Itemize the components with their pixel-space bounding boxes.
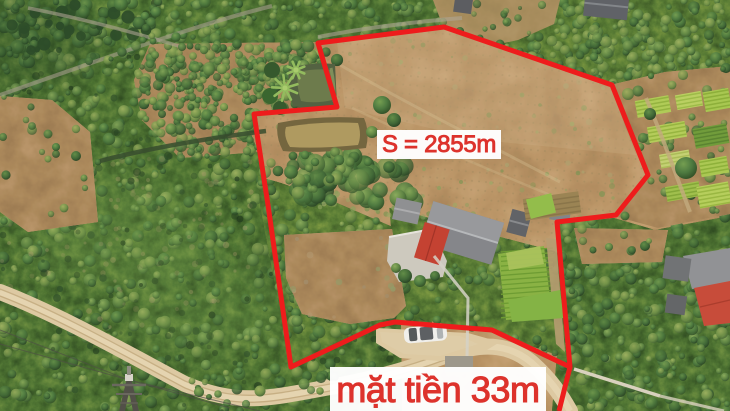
svg-text:S = 2855m: S = 2855m xyxy=(382,131,496,158)
svg-text:mặt tiền 33m: mặt tiền 33m xyxy=(336,369,539,410)
